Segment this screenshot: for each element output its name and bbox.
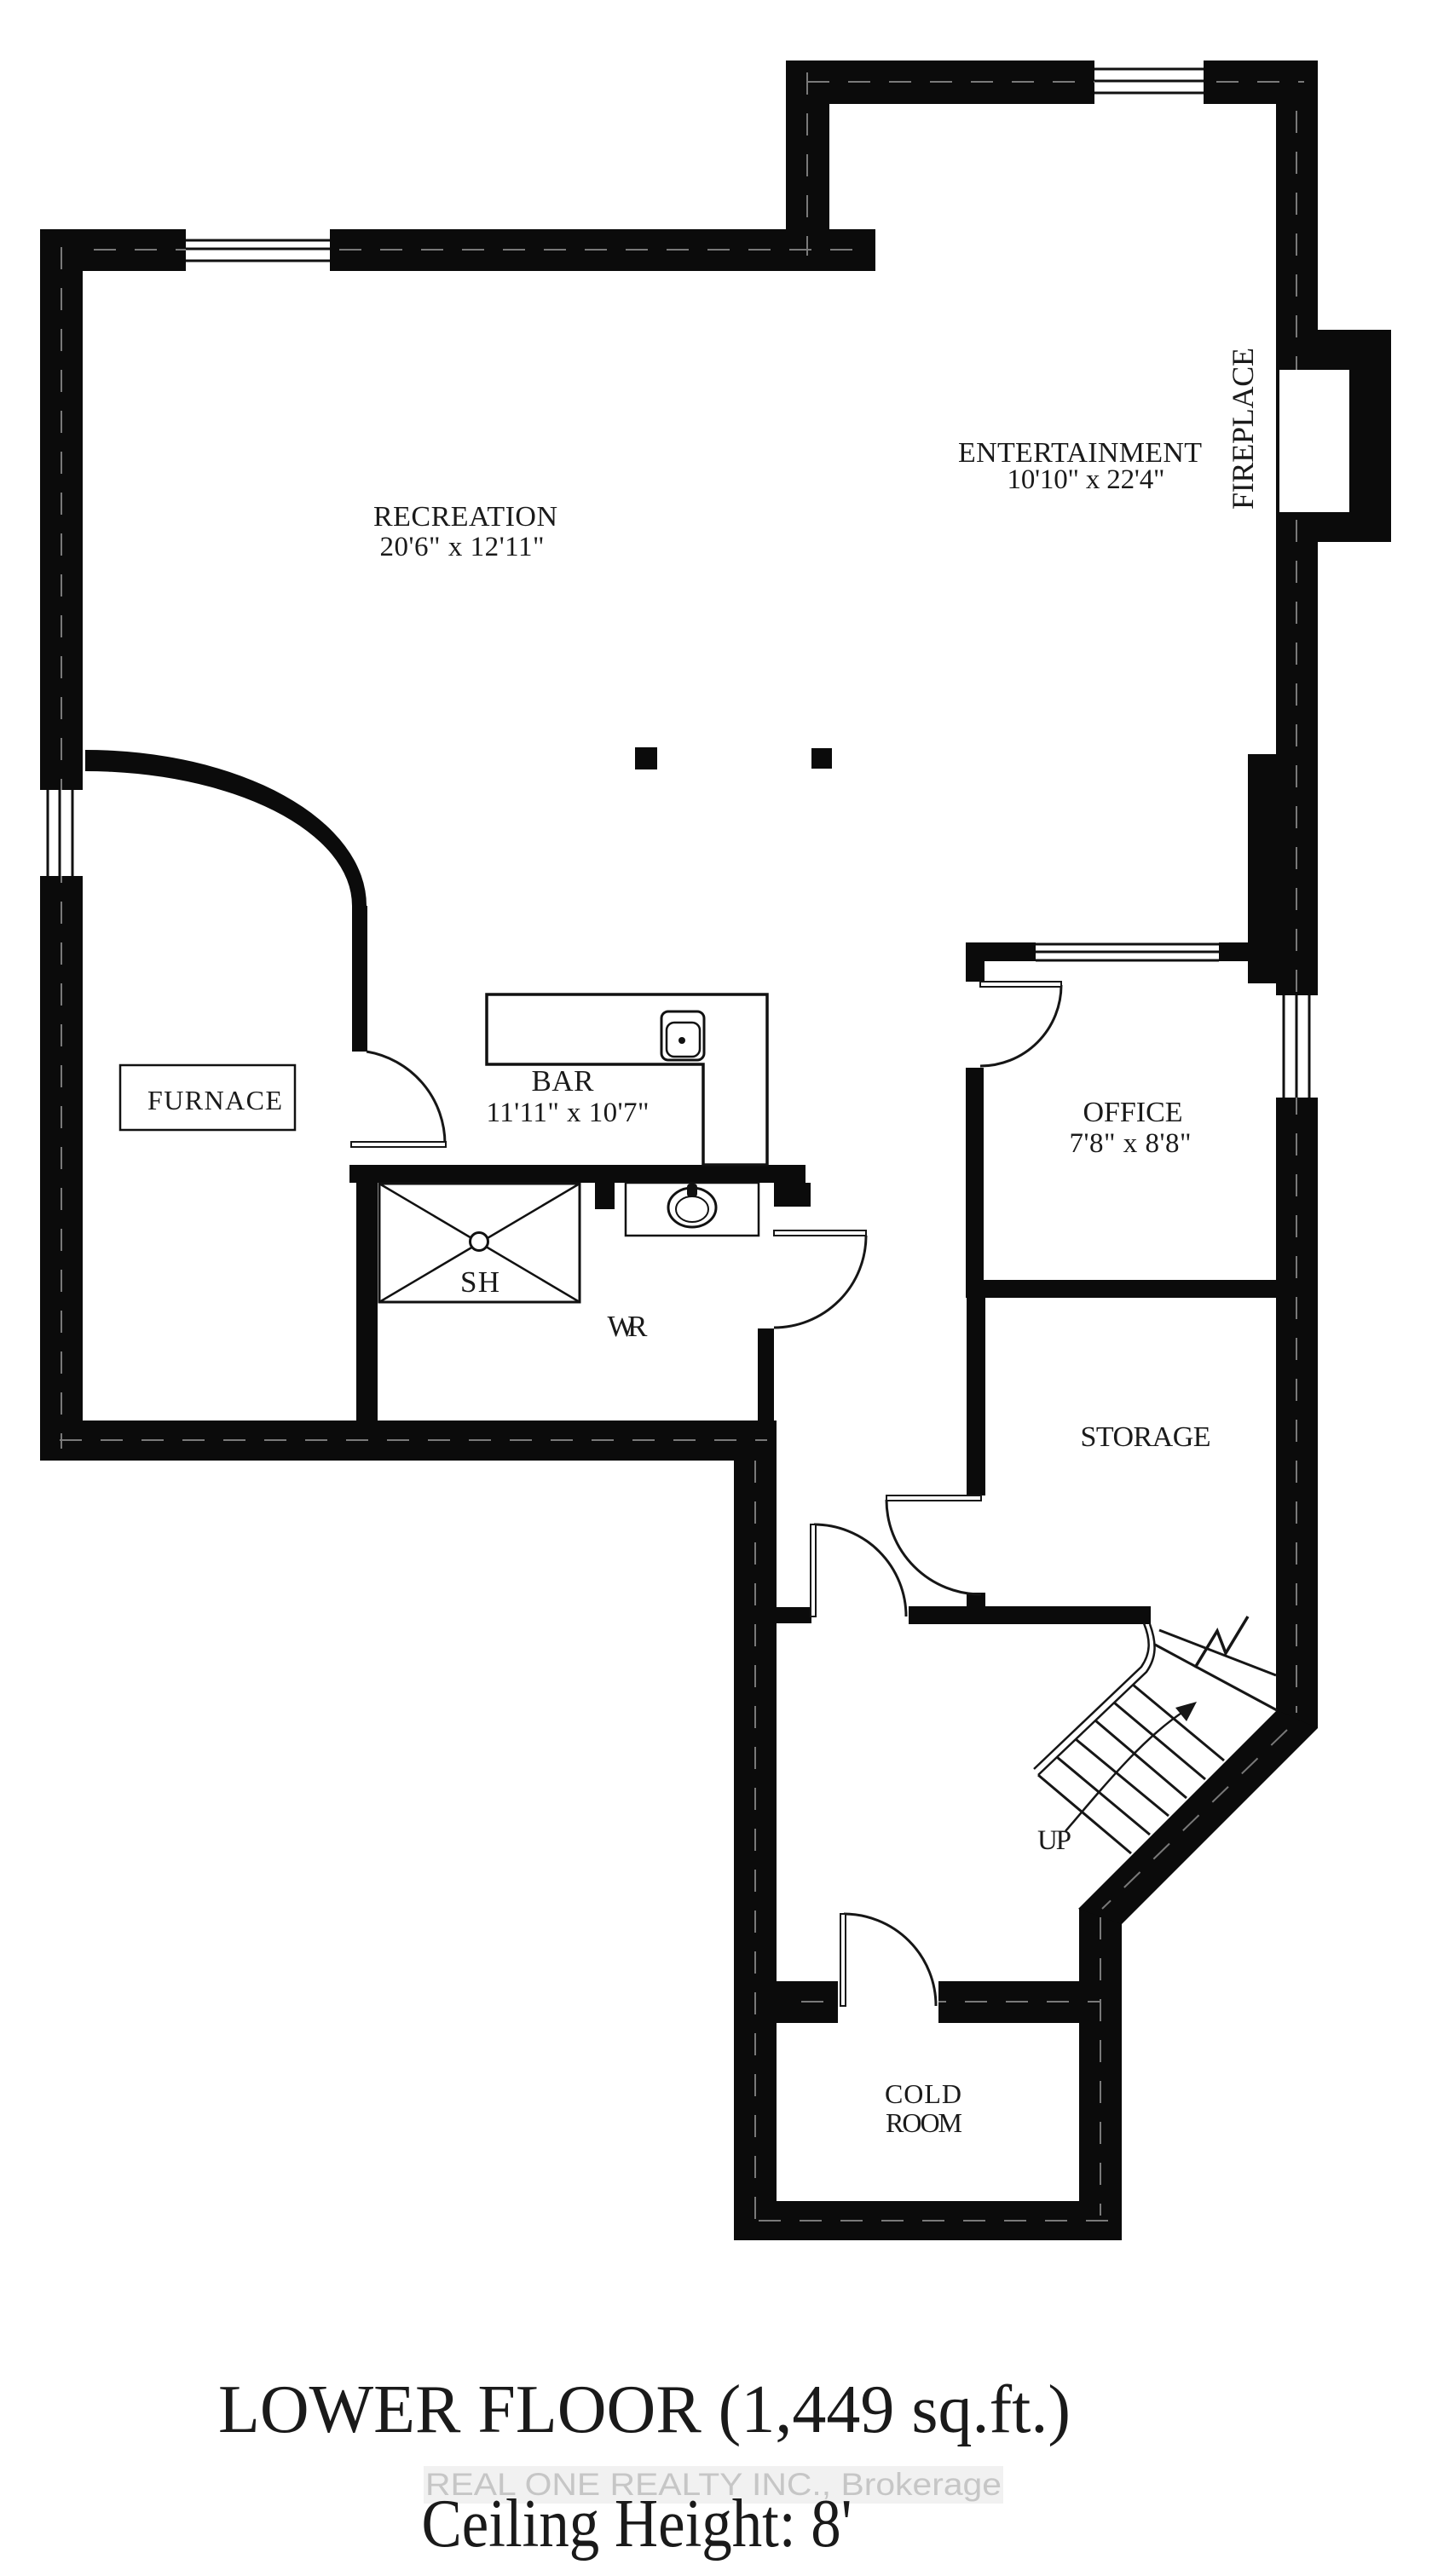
svg-text:7'8" x 8'8": 7'8" x 8'8" <box>1070 1128 1192 1159</box>
svg-text:10'10" x 22'4": 10'10" x 22'4" <box>1008 464 1165 495</box>
svg-text:WR: WR <box>608 1310 649 1343</box>
svg-text:FURNACE: FURNACE <box>147 1085 282 1115</box>
svg-text:FIREPLACE: FIREPLACE <box>1226 348 1260 510</box>
svg-text:SH: SH <box>460 1265 499 1299</box>
svg-text:COLD: COLD <box>885 2078 961 2109</box>
svg-text:20'6" x 12'11": 20'6" x 12'11" <box>380 532 545 562</box>
svg-text:STORAGE: STORAGE <box>1081 1421 1211 1453</box>
svg-text:BAR: BAR <box>532 1064 595 1098</box>
svg-text:LOWER FLOOR (1,449 sq.ft.): LOWER FLOOR (1,449 sq.ft.) <box>218 2372 1071 2447</box>
svg-text:Ceiling Height: 8': Ceiling Height: 8' <box>422 2487 852 2562</box>
svg-text:OFFICE: OFFICE <box>1083 1097 1183 1128</box>
svg-text:ROOM: ROOM <box>886 2107 962 2138</box>
svg-text:UP: UP <box>1037 1825 1071 1856</box>
svg-text:RECREATION: RECREATION <box>373 501 557 533</box>
svg-text:11'11" x 10'7": 11'11" x 10'7" <box>487 1098 650 1128</box>
